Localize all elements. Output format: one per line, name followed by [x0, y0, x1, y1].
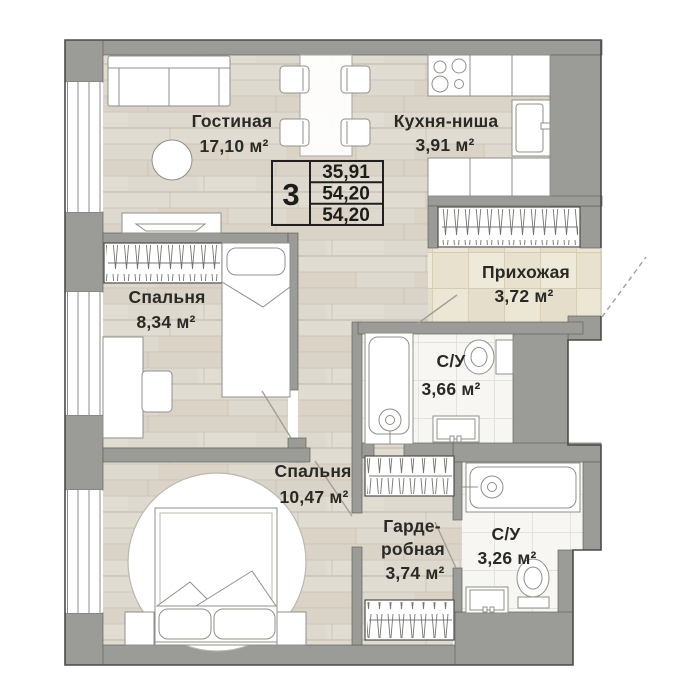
- bathtub-icon: [365, 333, 413, 444]
- room-label-bedroom2: Спальня: [275, 461, 352, 481]
- wardrobe-icon: [104, 243, 222, 283]
- nightstand-icon: [277, 612, 306, 645]
- room-label-wardrobe-line2: робная: [381, 539, 445, 559]
- unit-rooms-count: 3: [282, 177, 299, 212]
- room-area-bathroom1: 3,66 м²: [421, 379, 480, 399]
- room-label-living: Гостиная: [192, 111, 273, 131]
- doorway-strip: [453, 520, 462, 568]
- room-area-living: 17,10 м²: [199, 136, 268, 156]
- sofa-icon: [108, 56, 230, 106]
- room-area-bedroom2: 10,47 м²: [279, 487, 348, 507]
- floor-plan-page: Гостиная 17,10 м² Кухня-ниша 3,91 м² При…: [0, 0, 700, 700]
- sink-icon: [433, 416, 479, 442]
- nightstand-icon: [125, 612, 154, 645]
- sink-icon: [466, 587, 508, 613]
- room-area-hallway: 3,72 м²: [494, 286, 553, 306]
- closet-bottom-icon: [365, 600, 454, 640]
- unit-area-row2: 54,20: [322, 184, 370, 205]
- room-label-bedroom1: Спальня: [129, 287, 206, 307]
- unit-area-row1: 35,91: [322, 162, 370, 183]
- room-label-bathroom2: С/У: [492, 524, 522, 544]
- coffee-table-icon: [152, 140, 192, 180]
- toilet-icon: [464, 340, 513, 374]
- windows: [66, 82, 102, 613]
- floor-plan: Гостиная 17,10 м² Кухня-ниша 3,91 м² При…: [0, 0, 700, 700]
- bathtub-icon: [460, 463, 580, 512]
- window-icon: [66, 490, 102, 613]
- closet-top-icon: [365, 456, 454, 496]
- entrance-door-swing: [602, 257, 646, 317]
- room-area-kitchen: 3,91 м²: [415, 135, 474, 155]
- fridge-icon: [512, 100, 550, 156]
- bed-double-icon: [155, 508, 277, 645]
- desk-chair-icon: [142, 371, 172, 412]
- room-area-wardrobe: 3,74 м²: [385, 563, 444, 583]
- window-icon: [66, 82, 102, 212]
- room-label-bathroom1: С/У: [437, 351, 467, 371]
- window-icon: [66, 292, 102, 415]
- room-area-bedroom1: 8,34 м²: [136, 312, 195, 332]
- room-label-hallway: Прихожая: [482, 262, 570, 282]
- unit-area-row3: 54,20: [322, 205, 370, 226]
- desk-icon: [103, 337, 143, 438]
- bed-single-icon: [222, 243, 290, 397]
- doorway-strip: [352, 513, 362, 547]
- room-hallway-floor: [428, 248, 602, 322]
- room-area-bathroom2: 3,26 м²: [477, 548, 536, 568]
- tv-stand-icon: [122, 213, 221, 233]
- room-label-wardrobe-line1: Гарде-: [383, 516, 441, 536]
- hall-closet-icon: [438, 207, 580, 247]
- room-label-kitchen: Кухня-ниша: [394, 111, 499, 131]
